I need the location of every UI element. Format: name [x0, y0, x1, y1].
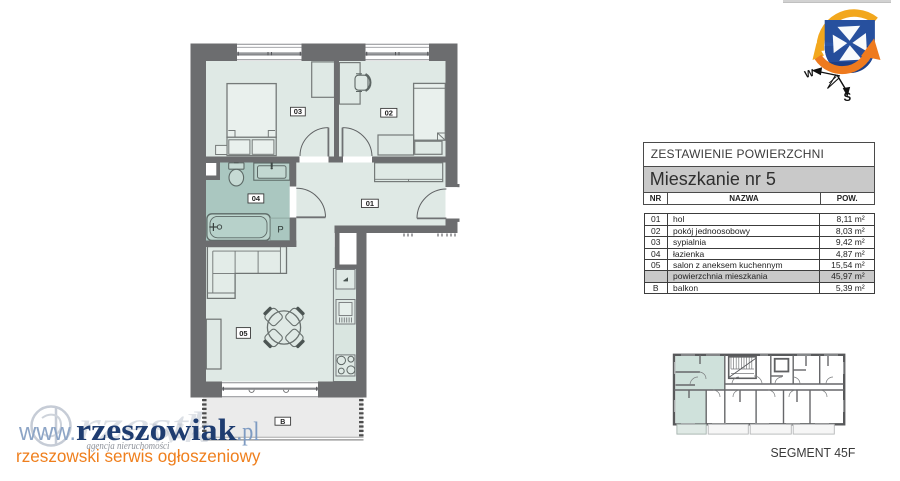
svg-text:.pl: .pl	[237, 417, 260, 446]
svg-text:rzeszowski serwis ogłoszeniowy: rzeszowski serwis ogłoszeniowy	[16, 446, 261, 466]
svg-text:www.: www.	[18, 419, 76, 446]
